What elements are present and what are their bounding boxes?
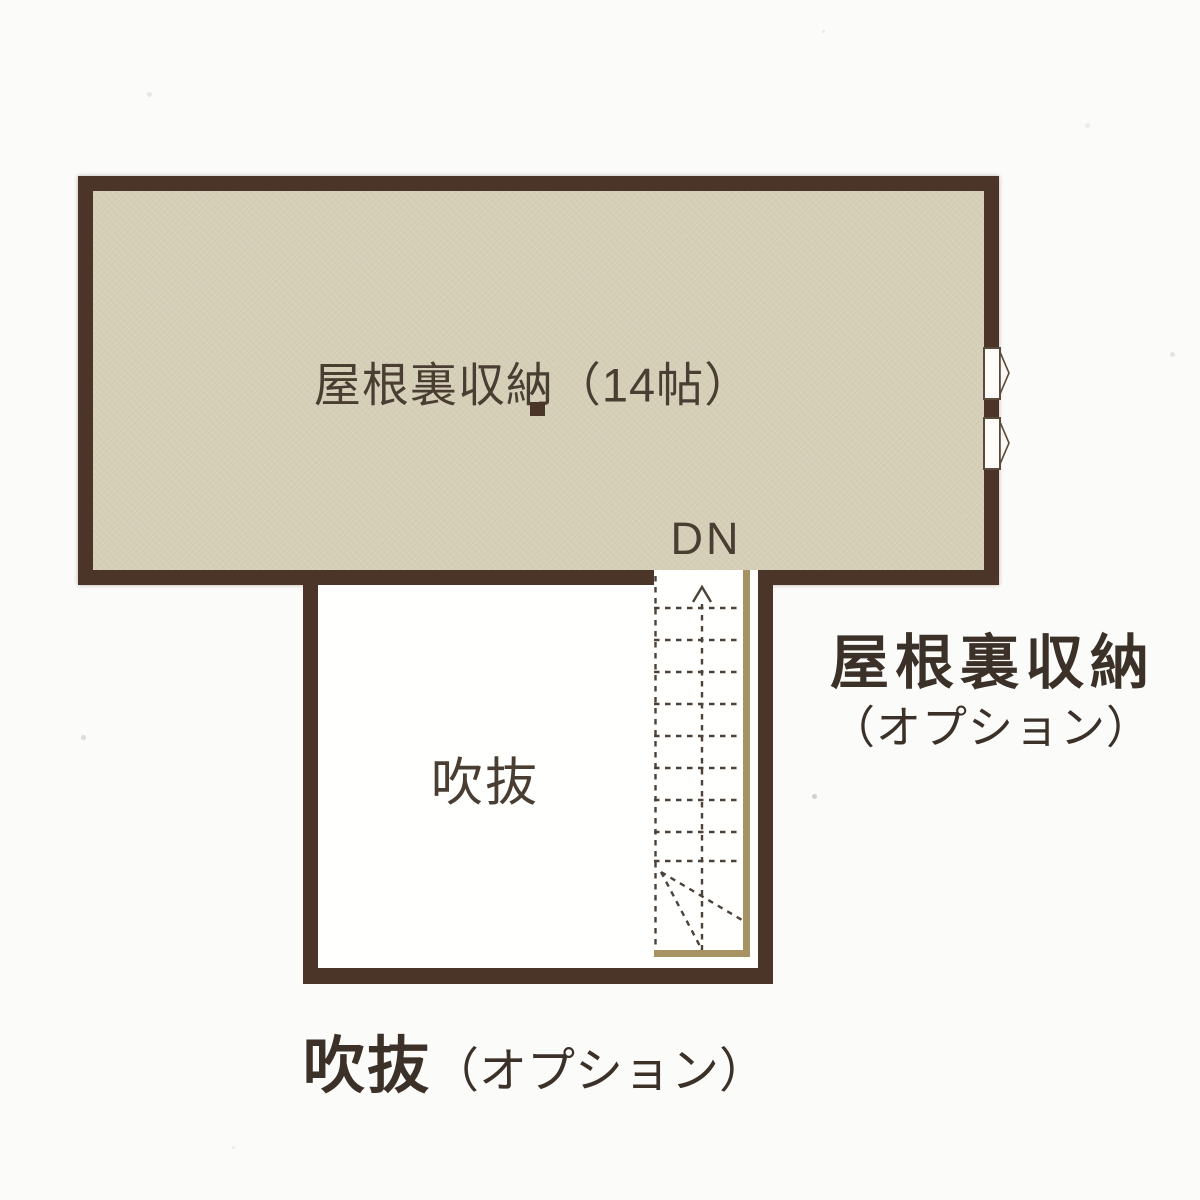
void-option-caption-title: 吹抜: [303, 1036, 431, 1098]
scan-noise: [0, 0, 3, 3]
window-icon-upper: [982, 346, 1012, 402]
void-room-left-wall: [303, 585, 318, 984]
void-room-right-wall: [758, 585, 773, 984]
attic-option-caption-subtitle: （オプション）: [830, 705, 1155, 750]
stair-bottom-rail: [654, 950, 750, 957]
void-room-bottom-wall: [303, 968, 773, 984]
floor-plan-canvas: 屋根裏収納（14帖） DN 吹抜: [0, 0, 1200, 1200]
staircase: [654, 570, 758, 957]
window-icon-lower: [982, 416, 1012, 472]
column-marker: [530, 402, 545, 416]
stair-dn-label: DN: [654, 516, 758, 561]
void-room-label: 吹抜: [431, 741, 539, 816]
void-option-caption: 吹抜 （オプション）: [303, 1036, 767, 1098]
stair-right-rail: [743, 570, 750, 957]
void-option-caption-subtitle: （オプション）: [431, 1048, 767, 1096]
attic-option-caption: 屋根裏収納 （オプション）: [830, 634, 1155, 750]
attic-option-caption-title: 屋根裏収納: [830, 634, 1155, 693]
